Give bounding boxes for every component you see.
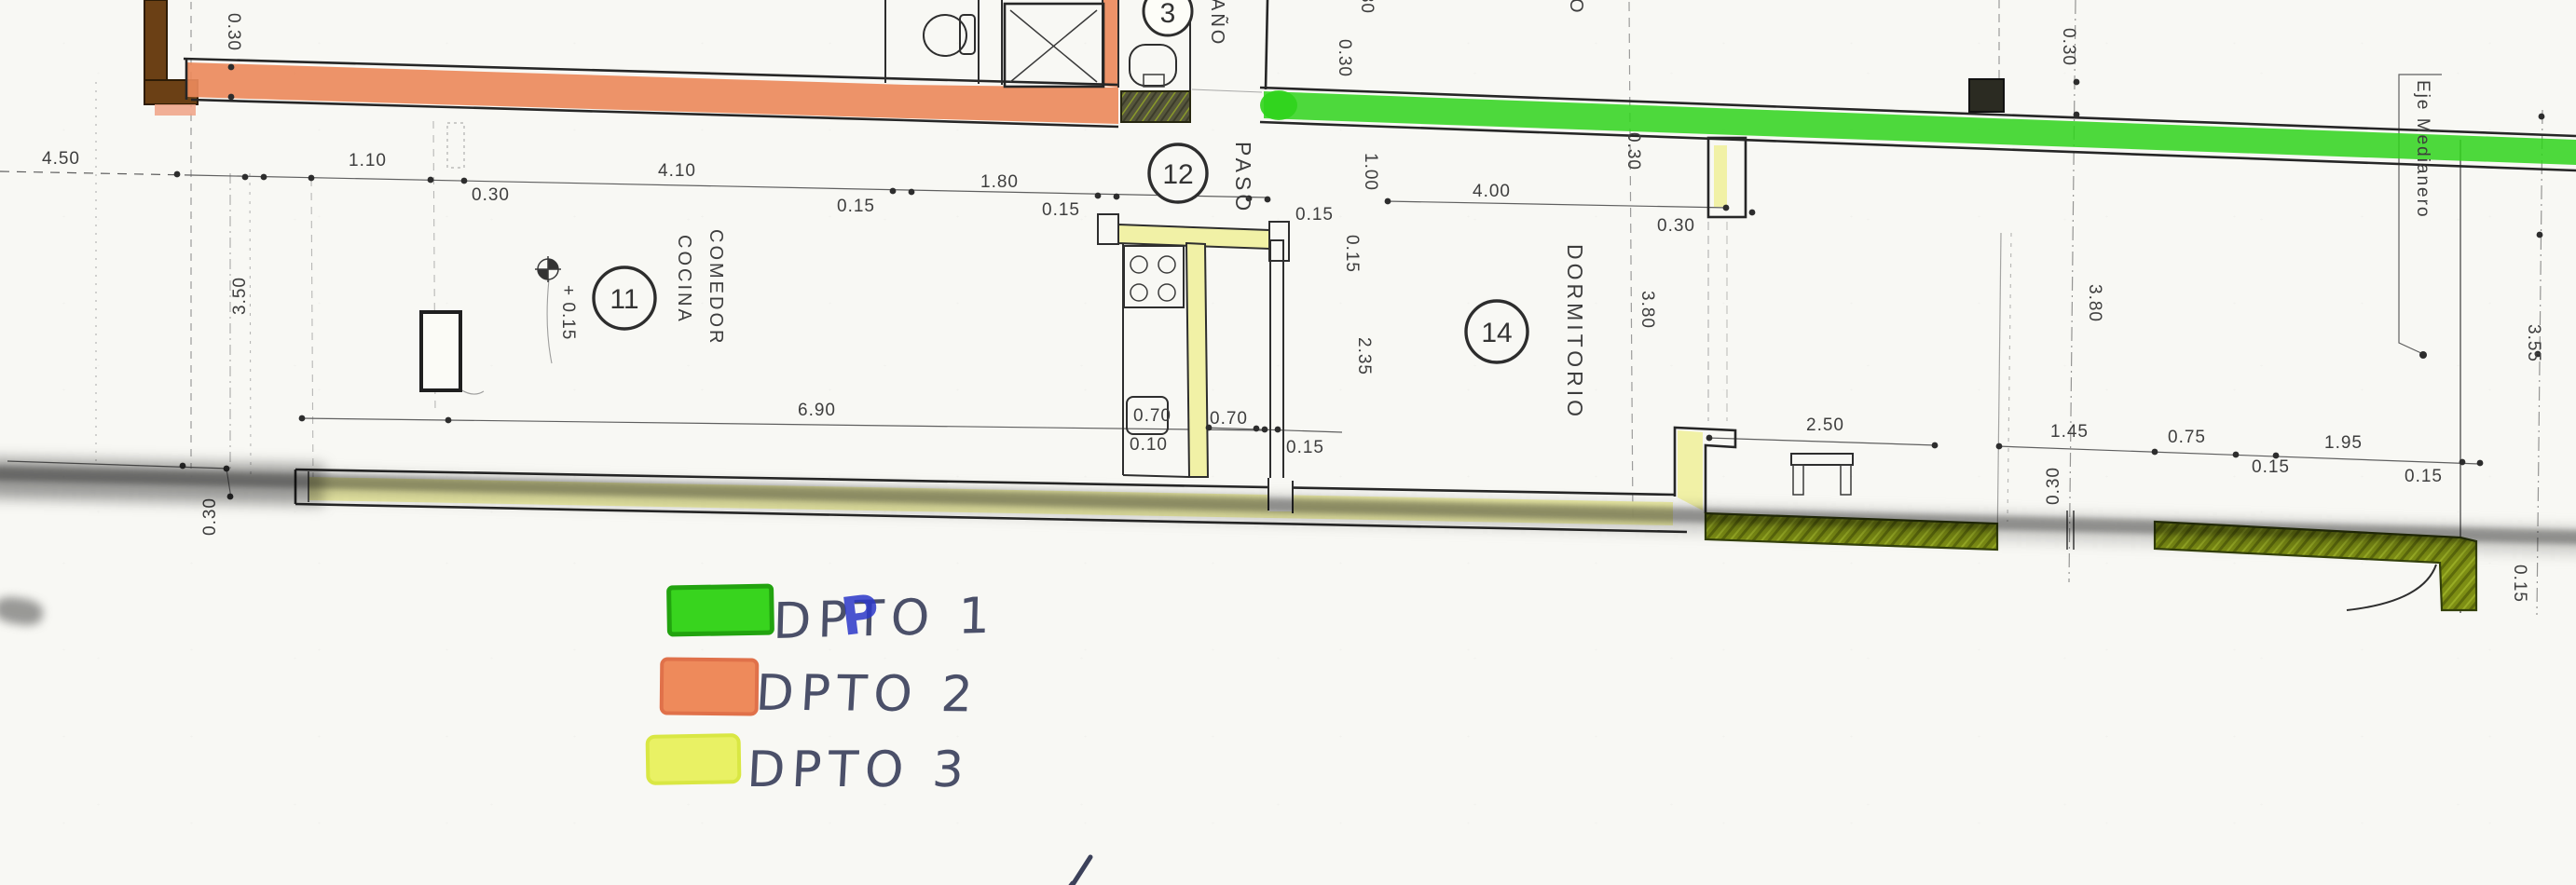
dim-label: 0.30 — [472, 185, 510, 205]
axis-label: Eje Medianero — [2413, 80, 2432, 219]
dim-label-v: 1.00 — [1361, 153, 1380, 191]
dim-label-v: 0.30 — [200, 497, 220, 536]
bench-icon — [1791, 454, 1853, 495]
legend-label-dpto2: DPTO 2 — [754, 664, 980, 724]
dim-label: 0.15 — [837, 197, 875, 216]
dim-label: 0.15 — [1295, 205, 1334, 225]
dim-label: 1.80 — [980, 172, 1019, 192]
floor-plan-page: 4.50 1.10 0.30 4.10 0.15 1.80 0.15 0.15 … — [0, 0, 2576, 885]
dim-label-v: 0.30 — [224, 13, 243, 51]
bidet-icon — [1130, 45, 1176, 86]
room-number-paso: 12 — [1162, 159, 1193, 190]
wall-dpto3-olive — [1706, 513, 2476, 610]
dim-label-v: 0.30 — [1624, 132, 1643, 170]
dim-label-v: 0.30 — [2059, 28, 2078, 66]
dim-label: 1.95 — [2324, 433, 2363, 453]
room-label-comedor: COMEDOR — [706, 229, 726, 346]
dim-label: 0.70 — [1210, 409, 1248, 429]
legend-swatch-dpto1 — [669, 586, 773, 634]
blue-overstrike: P — [838, 583, 884, 648]
wall-dpto1 — [1260, 88, 2576, 170]
room-label-fragment: RIO — [1566, 0, 1586, 16]
wall-step — [1675, 428, 1735, 513]
wall-dpto3-bottom — [295, 470, 1687, 532]
room-number-bano: 3 — [1160, 0, 1176, 29]
dim-label-v: 3.50 — [230, 277, 250, 315]
dim-label: 0.30 — [1657, 216, 1695, 236]
dim-label: 2.50 — [1806, 415, 1844, 435]
pen-mark — [1070, 857, 1090, 885]
floor-plan-svg: 4.50 1.10 0.30 4.10 0.15 1.80 0.15 0.15 … — [0, 0, 2576, 885]
room-number-cocina: 11 — [610, 284, 638, 315]
level-marker-icon — [535, 256, 561, 282]
dim-label-v: 2.35 — [1354, 337, 1374, 375]
room-number-dormitorio: 14 — [1481, 318, 1512, 348]
dim-label-v: 0.30 — [1335, 39, 1354, 77]
legend-swatch-dpto2 — [662, 659, 758, 714]
dim-label: 4.00 — [1473, 182, 1511, 201]
dim-label-v: 3.80 — [2085, 284, 2104, 322]
dim-label: 6.90 — [798, 401, 836, 420]
column — [1969, 79, 2004, 112]
dim-label: 0.15 — [2252, 457, 2290, 477]
room-label-cocina: COCINA — [674, 235, 694, 324]
dim-label: 0.15 — [2405, 467, 2443, 486]
legend: DPTO 1 DPTO 2 DPTO 3 P — [648, 583, 1090, 885]
dashed-box — [447, 123, 464, 168]
dim-label: 4.10 — [658, 161, 696, 181]
dim-label: 0.70 — [1133, 406, 1172, 426]
dim-label-v: 0.15 — [2510, 565, 2529, 603]
dim-label: 4.50 — [42, 149, 80, 169]
room-label-paso: PASO — [1231, 142, 1255, 214]
column-small — [421, 312, 460, 390]
legend-label-dpto1: DPTO 1 — [773, 587, 997, 650]
room-label-dormitorio: DORMITORIO — [1563, 244, 1587, 420]
dim-label: 1.45 — [2050, 422, 2089, 442]
dim-label: 1.10 — [349, 151, 387, 170]
dim-label-v: 0.80 — [1357, 0, 1377, 14]
dim-label: 0.10 — [1130, 435, 1168, 455]
hatched-wall — [1121, 91, 1190, 122]
legend-swatch-dpto3 — [648, 735, 740, 783]
dim-label: 0.15 — [1286, 438, 1324, 457]
dim-label-v: 3.55 — [2524, 324, 2543, 362]
level-label: + 0.15 — [558, 285, 578, 340]
dim-label: 0.15 — [1042, 200, 1080, 220]
dim-label-v: 3.80 — [1637, 291, 1657, 329]
dim-label-v: 0.30 — [2044, 467, 2063, 505]
dormitorio-left-wall — [1270, 240, 1283, 479]
door-arc — [2347, 565, 2436, 610]
wall-t-divider — [1098, 214, 1289, 477]
dim-label: 0.75 — [2168, 428, 2206, 447]
dim-label-v: 0.15 — [1342, 235, 1362, 273]
walls — [144, 0, 2576, 610]
legend-label-dpto3: DPTO 3 — [746, 741, 972, 798]
room-label-bano: AÑO — [1207, 0, 1229, 47]
